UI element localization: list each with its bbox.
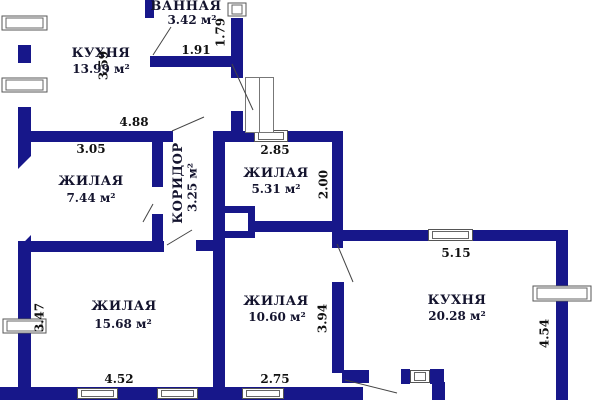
dimension-label: 2.75 (245, 372, 305, 387)
dimension-label: 1.91 (166, 43, 226, 58)
room-area-label: 7.44 м² (46, 191, 136, 206)
wall (18, 131, 173, 142)
window (77, 388, 118, 399)
room-area-label: 15.68 м² (78, 317, 168, 332)
floor-plan-canvas: КУХНЯ 13.99 м² ВАННАЯ 3.42 м² ЖИЛАЯ 7.44… (0, 0, 600, 400)
wall (231, 111, 243, 132)
window (533, 286, 592, 302)
wall (213, 131, 225, 391)
wall (432, 382, 445, 400)
room-name-label: ЖИЛАЯ (231, 294, 321, 310)
wall (152, 131, 163, 187)
dimension-label: 3.05 (61, 142, 121, 157)
dimension-label: 2.85 (245, 143, 305, 158)
wall (18, 45, 31, 63)
entrance-steps (245, 77, 274, 133)
door-swing-line (172, 117, 204, 131)
door-swing-line (337, 244, 353, 282)
room-area-label: 10.60 м² (232, 310, 322, 325)
dimension-label: 3.94 (316, 289, 331, 349)
wall (332, 282, 344, 373)
wall (401, 369, 410, 384)
window (2, 16, 48, 31)
wall (247, 221, 343, 232)
wall (18, 241, 164, 252)
window (410, 370, 430, 383)
room-name-label: ЖИЛАЯ (46, 174, 136, 190)
dimension-label: 5.15 (426, 246, 486, 261)
step-line (259, 78, 260, 132)
room-area-label: 20.28 м² (412, 309, 502, 324)
dimension-label: 2.00 (317, 155, 332, 215)
window (428, 229, 473, 241)
room-name-label: ЖИЛАЯ (79, 299, 169, 315)
room-name-label: КУХНЯ (412, 293, 502, 309)
window (157, 388, 198, 399)
wall (556, 230, 568, 400)
wall (18, 235, 31, 400)
dimension-label: 4.54 (538, 304, 553, 364)
window (242, 388, 284, 399)
room-area-label: 5.31 м² (231, 182, 321, 197)
window (2, 78, 48, 93)
dimension-label: 4.88 (104, 115, 164, 130)
room-area-label: 3.25 м² (186, 143, 201, 233)
dimension-label: 3.59 (97, 36, 112, 96)
room-name-label: ЖИЛАЯ (231, 166, 321, 182)
wall (342, 370, 369, 383)
dimension-label: 4.52 (89, 372, 149, 387)
stove-closet (213, 206, 255, 238)
dimension-label: 3.47 (33, 288, 48, 348)
